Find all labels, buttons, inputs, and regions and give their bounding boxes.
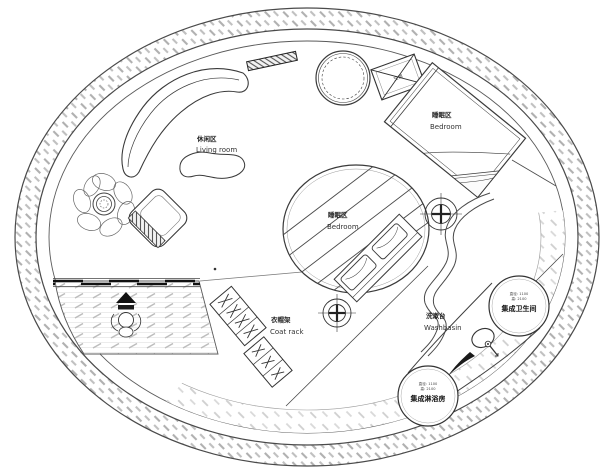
bedroom2-label-en: Bedroom bbox=[327, 223, 359, 231]
bathroom-pod-dim1: 直径: 1100 bbox=[510, 291, 529, 296]
sleeping-loft-circle bbox=[283, 165, 429, 302]
coat-rack-2 bbox=[244, 337, 292, 387]
bedroom1-label-zh: 睡眠区 bbox=[432, 110, 452, 119]
living-room-label-en: Living room bbox=[196, 146, 237, 154]
floor-plan-canvas: 空调 bbox=[0, 0, 611, 473]
bedroom2-label-zh: 睡眠区 bbox=[328, 210, 348, 219]
bedroom1-label-en: Bedroom bbox=[430, 123, 462, 131]
bedroom-partition-line bbox=[512, 160, 556, 186]
washbasin-label-zh: 洗漱台 bbox=[426, 311, 446, 320]
shower-pod-name: 集成淋浴房 bbox=[410, 394, 446, 403]
shower-pod-dim1: 直径: 1100 bbox=[419, 381, 438, 386]
bathroom-pod-dim2: 高: 2100 bbox=[511, 296, 527, 301]
crosshair-marker-2 bbox=[318, 294, 356, 332]
coat-rack-label-en: Coat rack bbox=[270, 328, 304, 336]
plant-icon bbox=[70, 170, 137, 240]
shower-pod-dim2: 高: 2100 bbox=[420, 386, 436, 391]
coat-rack-1 bbox=[210, 286, 266, 345]
coffee-table bbox=[180, 152, 245, 178]
armchair bbox=[125, 185, 190, 250]
round-side-table bbox=[316, 51, 370, 105]
wall-shelf bbox=[247, 51, 298, 70]
coat-rack-label-zh: 衣帽架 bbox=[271, 315, 291, 324]
bathroom-pod-name: 集成卫生间 bbox=[501, 304, 537, 313]
reference-dot bbox=[214, 268, 217, 271]
shower-pod: 直径: 1100 高: 2100 集成淋浴房 bbox=[398, 366, 458, 426]
washbasin-label-en: Washbasin bbox=[424, 324, 462, 332]
deck-terrace bbox=[55, 281, 218, 354]
living-room-label-zh: 休闲区 bbox=[196, 134, 217, 143]
floor-plan-drawing: 空调 bbox=[0, 0, 611, 473]
window-wall bbox=[53, 269, 336, 287]
bathroom-pod: 直径: 1100 高: 2100 集成卫生间 bbox=[489, 276, 549, 336]
